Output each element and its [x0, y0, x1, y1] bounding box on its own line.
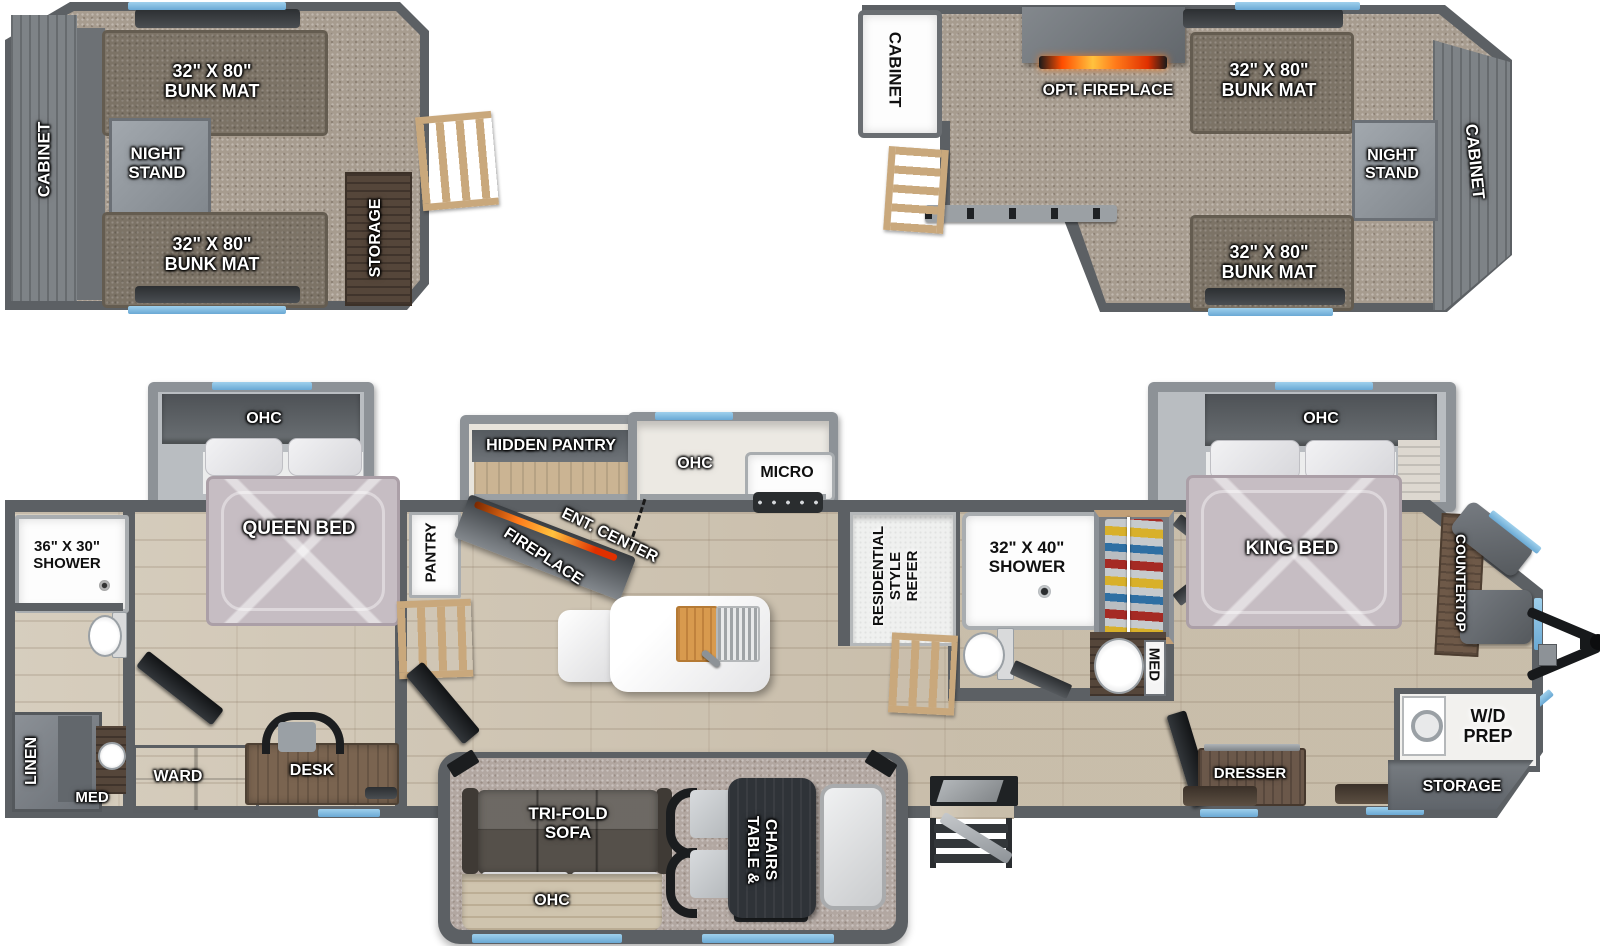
toilet-rear-bowl — [88, 615, 122, 657]
hidden-pantry-label: HIDDEN PANTRY — [471, 437, 631, 455]
loft-left-cabinet-label: CABINET — [34, 90, 53, 230]
loft-left-ladder — [415, 111, 499, 211]
desk-chair-seat — [278, 722, 316, 752]
window-bedroom-rear — [318, 809, 380, 817]
king-slide-window — [1275, 382, 1373, 390]
queen-bed-label: QUEEN BED — [219, 518, 379, 539]
loft-right-night-stand-label: NIGHT STAND — [1342, 147, 1442, 183]
sink-mid — [1094, 638, 1144, 694]
cap-bench-bottom — [1460, 590, 1532, 644]
queen-pillow-right — [288, 438, 362, 476]
king-side-wardrobe — [1398, 440, 1440, 502]
loft-left: CABINET 32" X 80" BUNK MAT NIGHT STAND 3… — [5, 2, 497, 316]
bench-front-left — [1183, 786, 1257, 806]
loft-right-railing — [925, 205, 1117, 222]
loft-left-platform-top — [135, 9, 300, 28]
loft-left-night-stand-label: NIGHT STAND — [107, 144, 207, 182]
desk-shelf — [365, 787, 397, 799]
loft-right-ladder — [883, 146, 949, 234]
loft-right-window-bottom — [1208, 308, 1333, 316]
desk-label: DESK — [272, 762, 352, 780]
wd-prep-label: W/D PREP — [1448, 706, 1528, 746]
entry-landing — [930, 776, 1018, 806]
dresser-label: DRESSER — [1210, 766, 1290, 783]
loft-left-window-top — [128, 2, 286, 10]
dinette-bench — [820, 784, 886, 910]
shower-rear-drain — [99, 580, 110, 591]
loft-right-platform-top — [1183, 9, 1343, 28]
shower-mid-drain — [1038, 585, 1051, 598]
refer-label: RESIDENTIAL STYLE REFER — [871, 511, 929, 641]
sofa-arm-left — [462, 788, 479, 874]
floorplan-canvas: CABINET 32" X 80" BUNK MAT NIGHT STAND 3… — [0, 0, 1600, 946]
toilet-mid-bowl — [963, 632, 1005, 678]
med-rear-label: MED — [62, 790, 122, 807]
shower-mid-label: 32" X 40" SHOWER — [972, 538, 1082, 576]
king-pillow-left — [1210, 440, 1300, 480]
closet-clothes — [1094, 510, 1174, 644]
loft-left-bunk-bottom-label: 32" X 80" BUNK MAT — [132, 234, 292, 274]
loft-right-window-top — [1235, 2, 1360, 10]
loft-right-fireplace-flame — [1039, 56, 1167, 69]
hidden-pantry-slide — [460, 415, 640, 512]
table-label: TABLE & CHAIRS — [743, 804, 801, 896]
loft-left-cabinet-face — [77, 28, 105, 300]
closet-rod — [1127, 517, 1130, 637]
loft-left-bunk-top-label: 32" X 80" BUNK MAT — [132, 61, 292, 101]
living-ohc-label: OHC — [512, 892, 592, 910]
stairs-mid-railing — [888, 632, 958, 715]
loft-left-window-bottom — [128, 306, 286, 314]
linen-label: LINEN — [23, 706, 41, 816]
window-front-left — [1200, 809, 1258, 817]
washer — [1402, 696, 1446, 756]
entry-steps — [928, 818, 1016, 872]
island-sink — [716, 606, 760, 662]
king-bed-label: KING BED — [1212, 538, 1372, 559]
loft-right-fireplace-unit — [1022, 7, 1185, 63]
stairs-rear-railing — [397, 599, 474, 680]
king-pillow-right — [1305, 440, 1395, 480]
living-slide: TRI-FOLD SOFA OHC TABLE & CHAIRS — [438, 752, 908, 944]
loft-right-bunk-bottom-label: 32" X 80" BUNK MAT — [1189, 242, 1349, 282]
loft-right-cabinet-left-label: CABINET — [885, 10, 904, 130]
loft-right-bunk-top-label: 32" X 80" BUNK MAT — [1189, 60, 1349, 100]
loft-right: CABINET OPT. FIREPLACE 32" X 80" BUNK MA… — [855, 2, 1560, 318]
queen-pillow-left — [205, 438, 283, 476]
hitch — [1528, 592, 1600, 692]
kitchen-slide-window — [655, 412, 733, 420]
king-ohc-label: OHC — [1281, 410, 1361, 428]
queen-bed — [206, 476, 400, 626]
living-window-right — [702, 934, 834, 943]
med-mid-label: MED — [1145, 634, 1162, 694]
kitchen-ohc-label: OHC — [655, 455, 735, 473]
living-window-left — [472, 934, 622, 943]
storage-front-label: STORAGE — [1412, 778, 1512, 796]
loft-right-fireplace-label: OPT. FIREPLACE — [1023, 82, 1193, 100]
micro-label: MICRO — [747, 464, 827, 482]
wall-refer — [838, 508, 850, 646]
hidden-pantry-shelf — [474, 462, 630, 494]
ward-label: WARD — [138, 768, 218, 786]
pantry-label: PANTRY — [424, 502, 441, 602]
stove-burners — [753, 492, 823, 513]
queen-ohc-label: OHC — [224, 410, 304, 428]
shower-rear-label: 36" X 30" SHOWER — [17, 539, 117, 573]
queen-slide-window — [212, 382, 312, 390]
sink-rear — [98, 742, 126, 770]
loft-left-platform-bottom — [135, 286, 300, 303]
countertop-label: COUNTERTOP — [1452, 513, 1468, 653]
loft-left-storage-label: STORAGE — [367, 178, 385, 298]
sofa-label: TRI-FOLD SOFA — [498, 804, 638, 842]
loft-right-platform-bottom — [1205, 288, 1345, 305]
